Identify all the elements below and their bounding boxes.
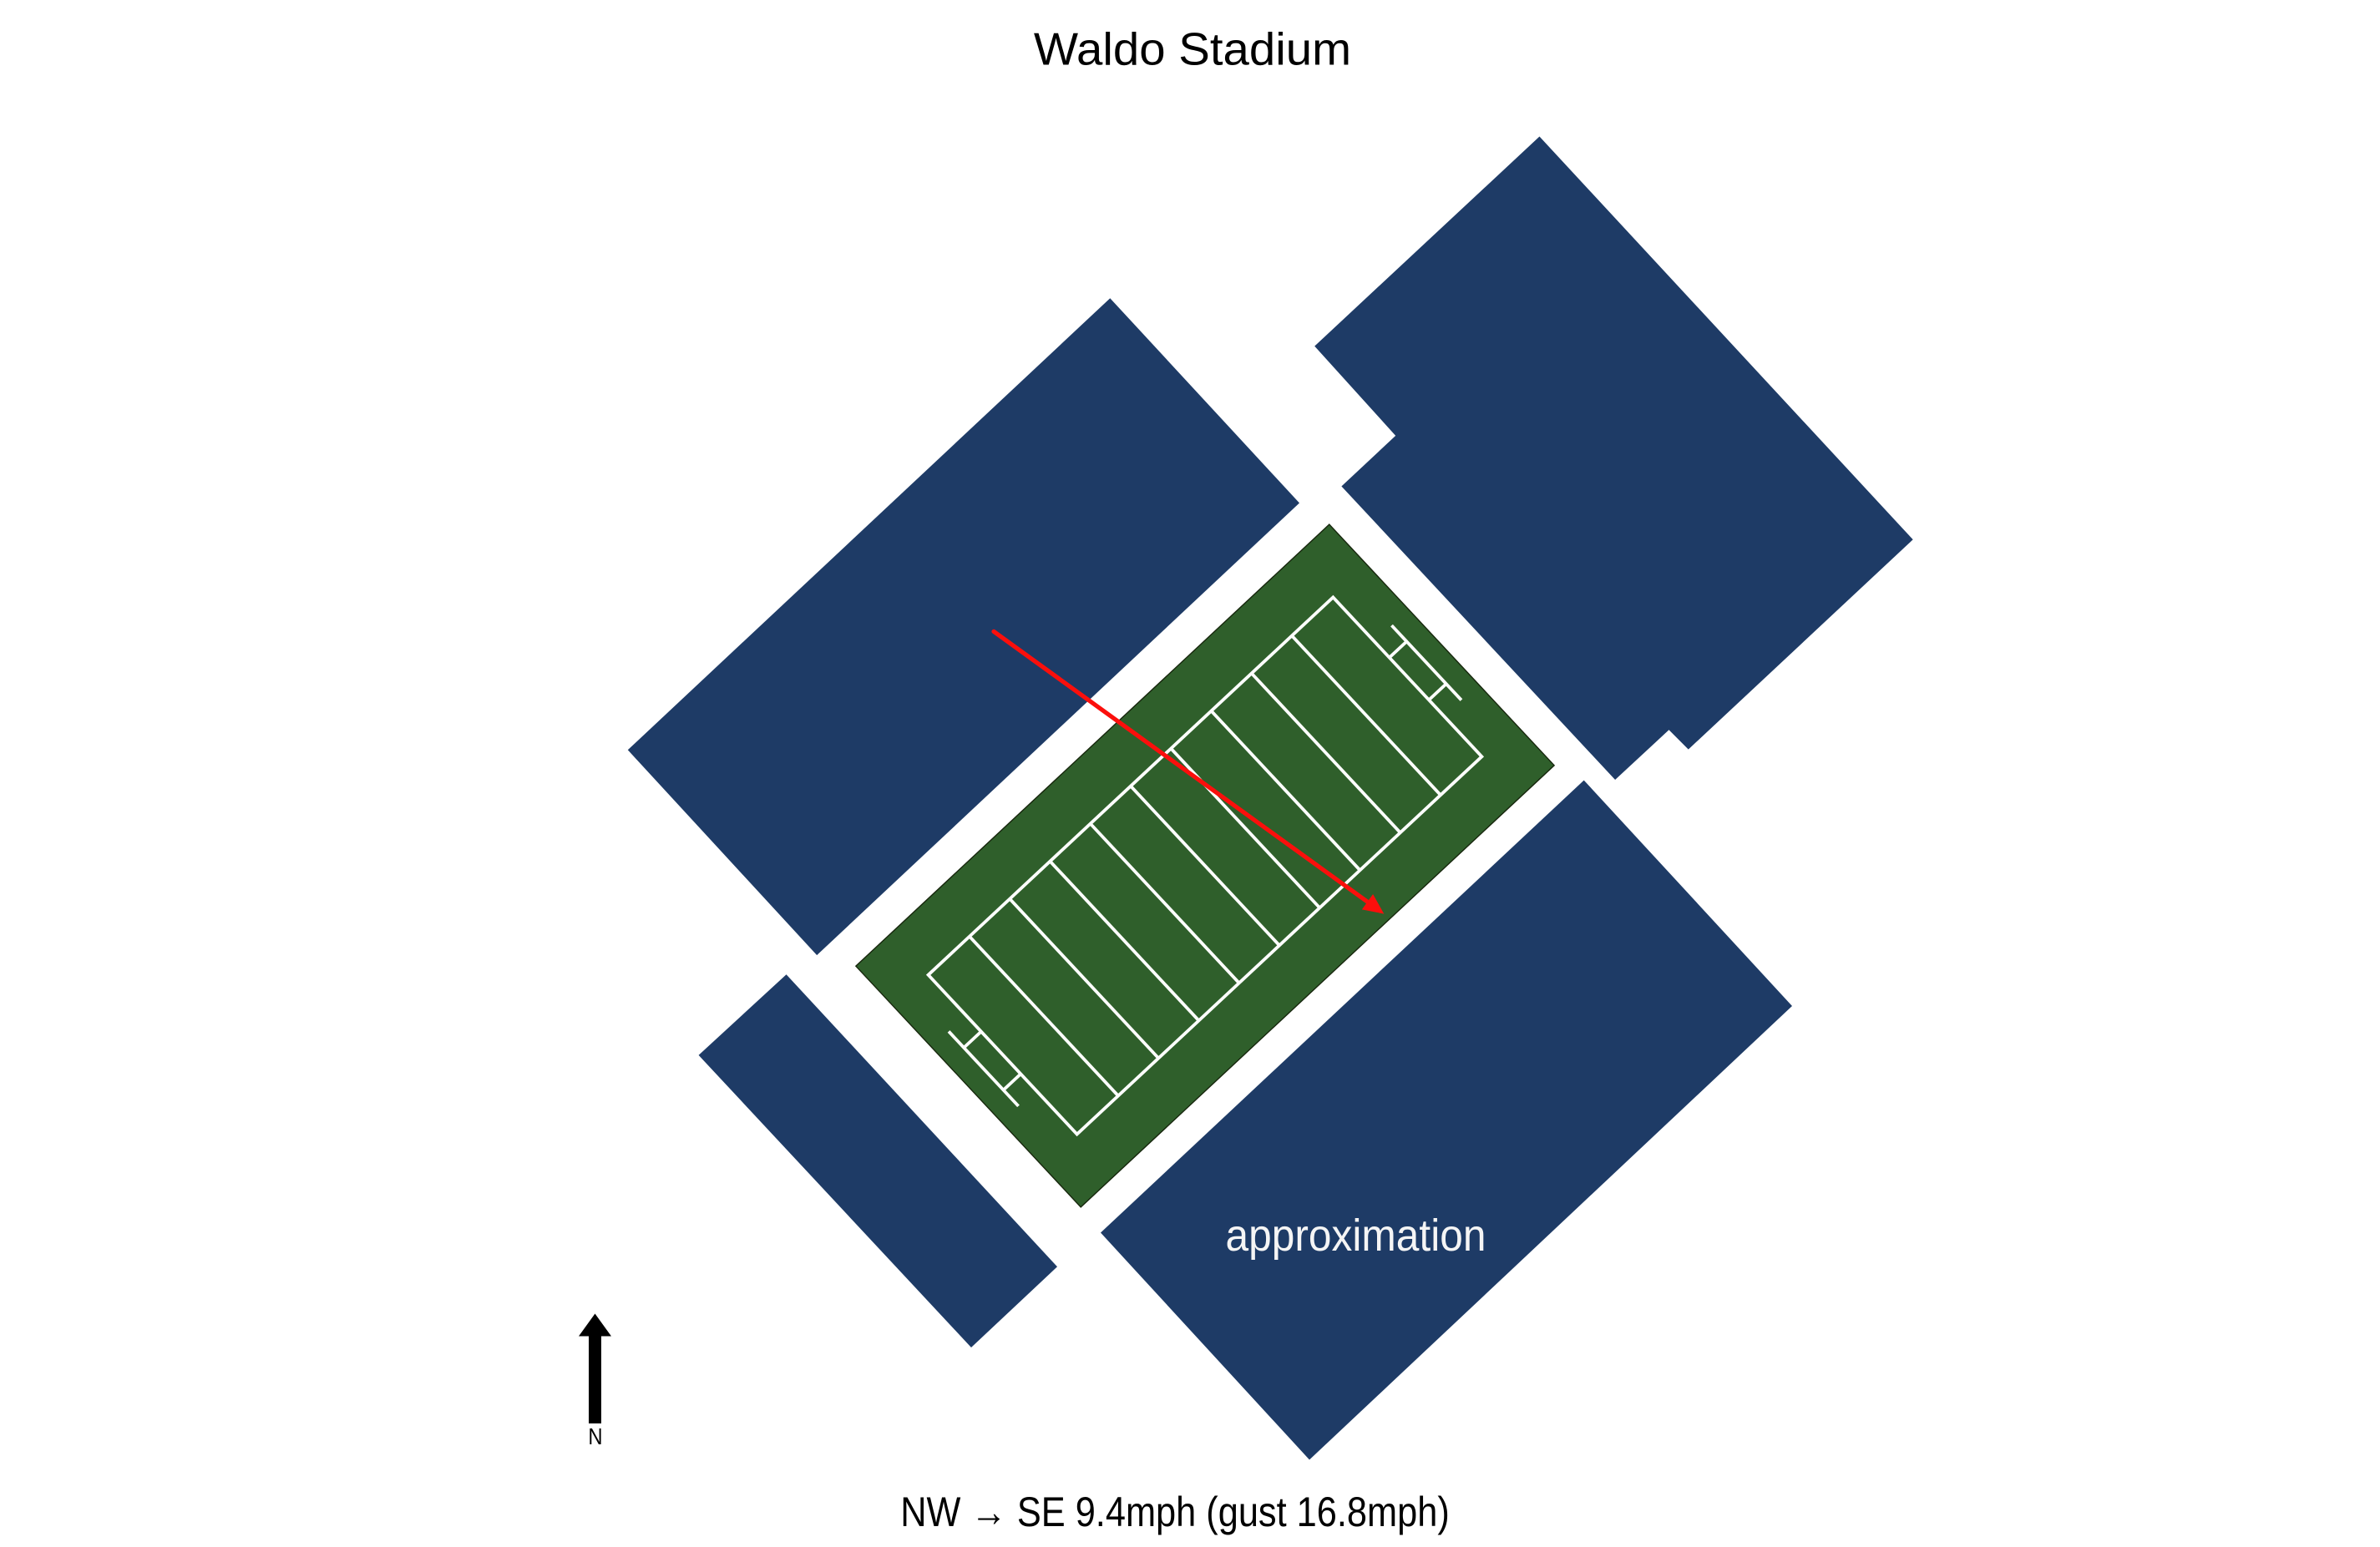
- svg-text:Waldo Stadium: Waldo Stadium: [1034, 23, 1351, 74]
- svg-text:approximation: approximation: [1226, 1210, 1486, 1260]
- svg-text:N: N: [588, 1423, 602, 1449]
- svg-text:NW → SE 9.4mph (gust 16.8mph): NW → SE 9.4mph (gust 16.8mph): [900, 1489, 1450, 1535]
